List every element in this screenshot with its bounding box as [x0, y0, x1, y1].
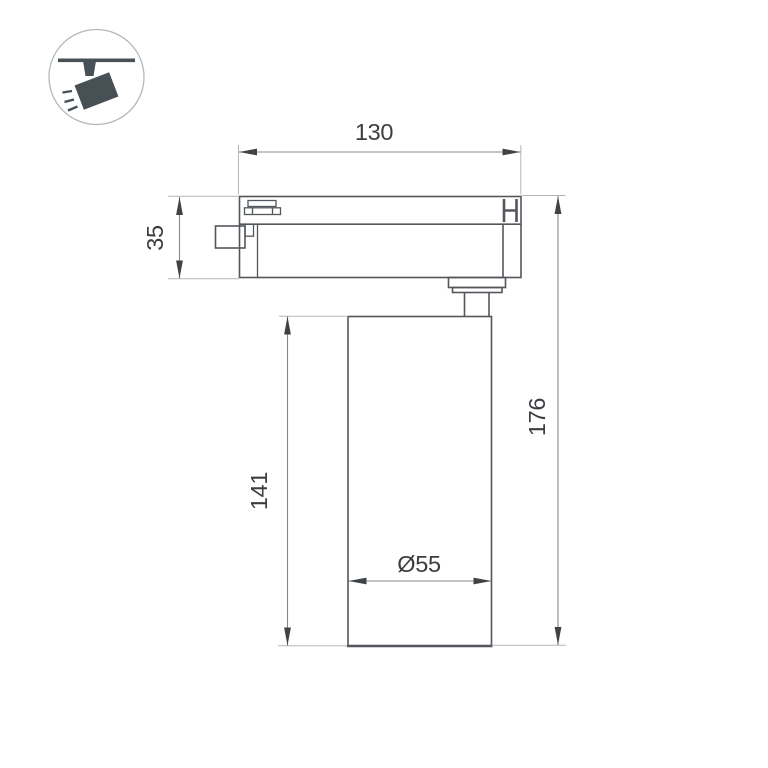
arrowhead-left	[239, 149, 257, 156]
icon-circle	[49, 30, 144, 125]
dimension-body-height: 141	[246, 316, 348, 646]
arrowhead-up	[284, 317, 291, 335]
dim-diameter-label: Ø55	[397, 551, 441, 577]
dim-track-width-label: 130	[355, 119, 394, 145]
dimension-total-height: 176	[493, 196, 566, 646]
lamp-body	[347, 317, 493, 647]
dimension-drawing: 130 35 141 176 Ø55	[0, 0, 768, 768]
track-adapter	[216, 197, 522, 278]
arrowhead-right	[474, 578, 492, 585]
clip-plate-upper	[248, 201, 276, 207]
arrowhead-left	[349, 578, 367, 585]
dim-adapter-height-label: 35	[142, 225, 168, 251]
arrowhead-up	[176, 197, 183, 215]
clip-plate-lower	[245, 208, 281, 215]
light-ray-icon	[63, 91, 73, 93]
mount-type-icon	[49, 30, 144, 125]
dimension-adapter-height: 35	[142, 196, 239, 278]
h-channel-detail	[504, 199, 517, 222]
drawing-canvas: 130 35 141 176 Ø55	[0, 0, 768, 768]
lock-knob	[216, 226, 246, 248]
mount-neck	[449, 278, 506, 317]
dimension-diameter: Ø55	[349, 551, 492, 584]
knob-step	[245, 224, 254, 236]
dim-body-height-label: 141	[246, 472, 272, 510]
cylinder-outline	[348, 317, 492, 647]
neck-flange-upper	[449, 278, 506, 288]
arrowhead-down	[284, 628, 291, 646]
arrowhead-down	[555, 627, 562, 645]
dim-total-height-label: 176	[524, 398, 550, 437]
neck-flange-lower	[453, 288, 503, 293]
dimension-track-width: 130	[239, 119, 521, 195]
adapter-outline	[240, 197, 522, 278]
arrowhead-right	[503, 149, 521, 156]
arrowhead-down	[176, 261, 183, 279]
arrowhead-up	[555, 196, 562, 214]
track-bar-icon	[58, 59, 135, 63]
